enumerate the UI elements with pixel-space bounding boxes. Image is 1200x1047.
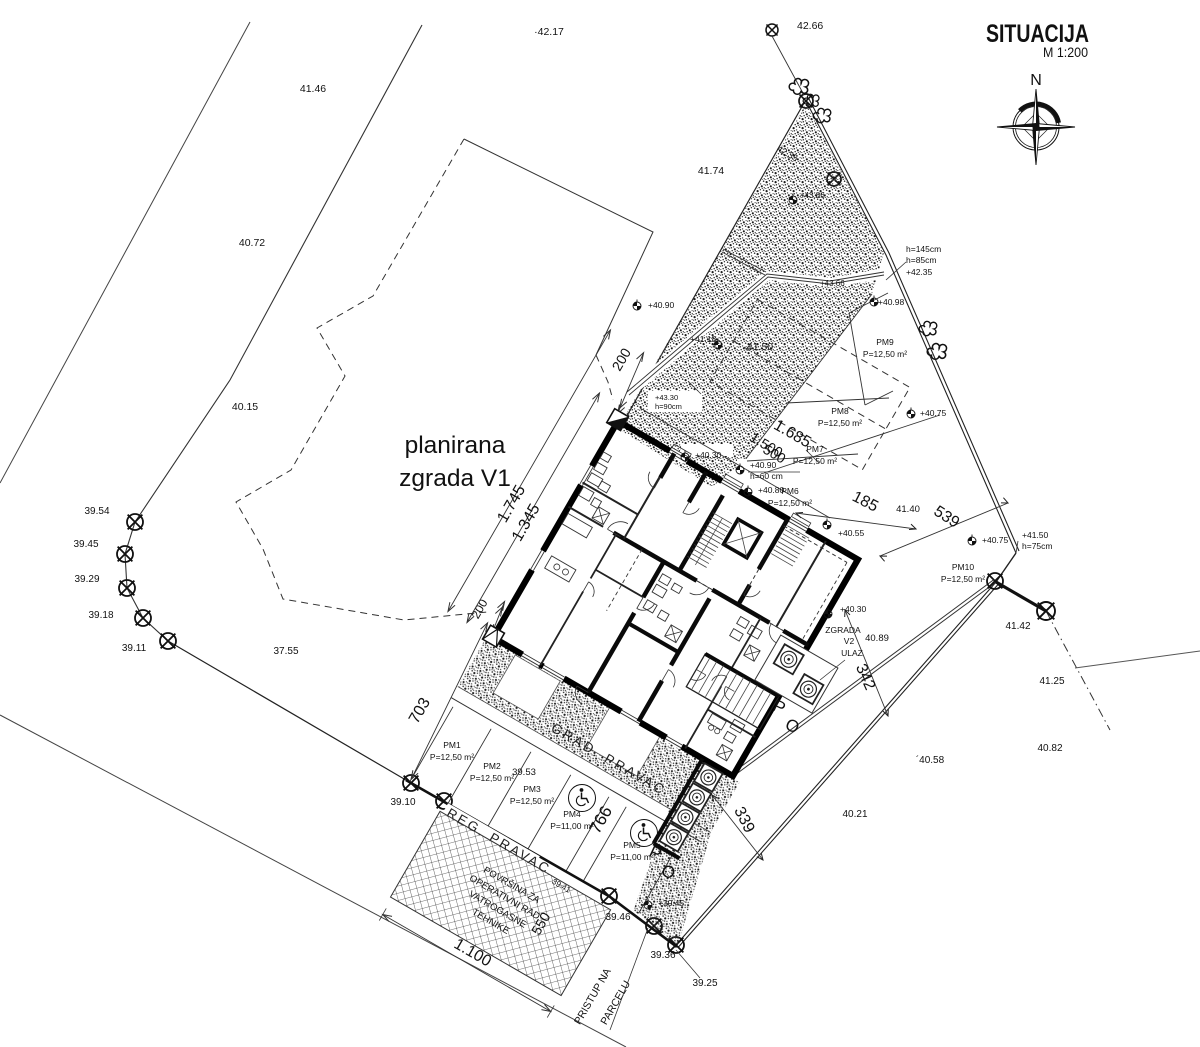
svg-text:39.18: 39.18 xyxy=(88,610,113,621)
svg-text:+40.30: +40.30 xyxy=(695,450,722,460)
svg-text:ULAZ: ULAZ xyxy=(841,648,863,658)
svg-text:P=11,00 m²: P=11,00 m² xyxy=(550,821,594,831)
svg-text:41.50: 41.50 xyxy=(747,341,773,353)
svg-text:planirana: planirana xyxy=(405,432,506,459)
svg-text:42.66: 42.66 xyxy=(797,20,823,32)
svg-text:39.45: 39.45 xyxy=(73,539,98,550)
svg-text:ZGRADA: ZGRADA xyxy=(825,625,861,635)
svg-text:37.55: 37.55 xyxy=(273,646,298,657)
svg-text:41.42: 41.42 xyxy=(1005,621,1030,632)
svg-text:41.46: 41.46 xyxy=(300,83,326,95)
svg-text:39.29: 39.29 xyxy=(74,574,99,585)
svg-text:41.74: 41.74 xyxy=(698,165,724,177)
svg-text:+41.18: +41.18 xyxy=(690,334,717,344)
svg-text:´40.58: ´40.58 xyxy=(916,754,945,766)
svg-text:N: N xyxy=(1030,72,1042,89)
svg-text:h=145cm: h=145cm xyxy=(906,244,941,254)
svg-text:40.15: 40.15 xyxy=(232,401,258,413)
svg-text:+43.66: +43.66 xyxy=(820,279,845,288)
svg-text:39.10: 39.10 xyxy=(390,797,415,808)
svg-text:+43.86: +43.86 xyxy=(800,191,825,200)
svg-text:+40.55: +40.55 xyxy=(838,528,865,538)
svg-text:P=12,50 m²: P=12,50 m² xyxy=(470,773,514,783)
svg-text:h=75cm: h=75cm xyxy=(1022,541,1052,551)
svg-text:h=90cm: h=90cm xyxy=(655,402,682,411)
svg-text:·42.17: ·42.17 xyxy=(534,26,564,38)
svg-text:39.46: 39.46 xyxy=(605,912,630,923)
svg-text:39.11: 39.11 xyxy=(122,643,147,654)
svg-text:V2: V2 xyxy=(844,636,855,646)
svg-text:P=12,50 m²: P=12,50 m² xyxy=(863,349,907,359)
svg-text:P=12,50 m²: P=12,50 m² xyxy=(510,796,554,806)
svg-text:+42.35: +42.35 xyxy=(906,267,933,277)
svg-text:39.36: 39.36 xyxy=(650,950,675,961)
svg-text:zgrada V1: zgrada V1 xyxy=(399,465,511,492)
svg-text:P=12,50 m²: P=12,50 m² xyxy=(793,456,837,466)
svg-text:39.25: 39.25 xyxy=(692,978,717,989)
svg-text:P=12,50 m²: P=12,50 m² xyxy=(430,752,474,762)
svg-text:+40.98: +40.98 xyxy=(878,297,905,307)
svg-text:PM6: PM6 xyxy=(781,486,799,496)
svg-text:40.72: 40.72 xyxy=(239,237,265,249)
svg-text:+39.45: +39.45 xyxy=(658,898,685,908)
svg-text:PM10: PM10 xyxy=(952,562,974,572)
svg-text:h=85cm: h=85cm xyxy=(906,255,936,265)
svg-text:+40.90: +40.90 xyxy=(648,300,675,310)
svg-text:P=12,50 m²: P=12,50 m² xyxy=(818,418,862,428)
svg-text:PM3: PM3 xyxy=(523,784,541,794)
svg-text:PM2: PM2 xyxy=(483,761,501,771)
svg-text:40.89: 40.89 xyxy=(865,633,889,644)
svg-text:40.21: 40.21 xyxy=(842,809,867,820)
svg-text:41.25: 41.25 xyxy=(1039,676,1064,687)
svg-text:39.53: 39.53 xyxy=(512,767,536,778)
svg-text:+40.30: +40.30 xyxy=(840,604,867,614)
svg-text:+41.50: +41.50 xyxy=(1022,530,1049,540)
svg-text:PM1: PM1 xyxy=(443,740,461,750)
svg-text:P=12,50 m²: P=12,50 m² xyxy=(941,574,985,584)
svg-text:+40.75: +40.75 xyxy=(920,408,947,418)
svg-text:+43.30: +43.30 xyxy=(655,393,678,402)
svg-text:PM8: PM8 xyxy=(831,406,849,416)
svg-text:PM7: PM7 xyxy=(806,444,824,454)
svg-text:PM9: PM9 xyxy=(876,337,894,347)
svg-text:P=12,50 m²: P=12,50 m² xyxy=(768,498,812,508)
svg-text:39.54: 39.54 xyxy=(84,506,109,517)
svg-text:h=60 cm: h=60 cm xyxy=(750,471,783,481)
svg-text:+40.75: +40.75 xyxy=(982,535,1009,545)
svg-text:41.40: 41.40 xyxy=(896,504,920,515)
svg-text:40.82: 40.82 xyxy=(1037,743,1062,754)
svg-text:M 1:200: M 1:200 xyxy=(1043,44,1088,60)
